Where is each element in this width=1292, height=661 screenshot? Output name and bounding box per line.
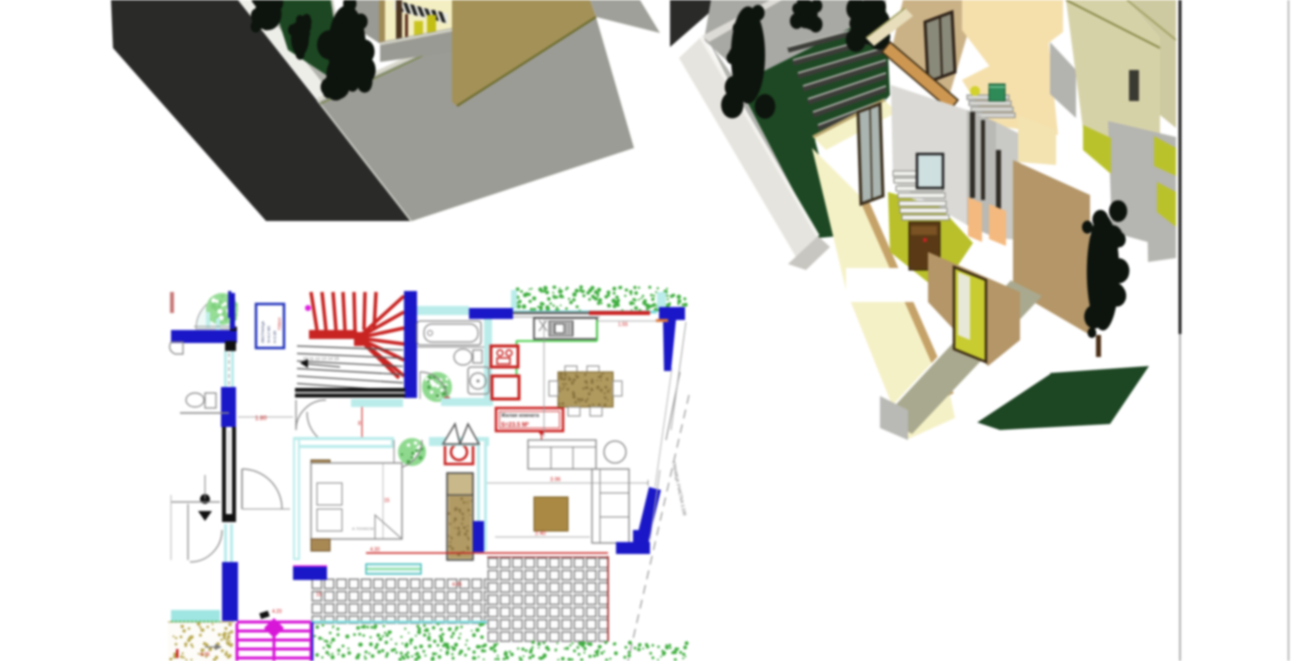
svg-text:15: 15 [316, 592, 322, 598]
svg-text:1.80: 1.80 [255, 416, 267, 422]
svg-text:1.55: 1.55 [618, 322, 628, 328]
svg-text:4.30: 4.30 [370, 547, 380, 553]
svg-text:15: 15 [384, 498, 390, 504]
svg-text:4.20: 4.20 [272, 609, 282, 615]
svg-text:2.40: 2.40 [535, 531, 546, 537]
svg-text:3.96: 3.96 [550, 477, 561, 483]
svg-text:S=23.5 М²: S=23.5 М² [501, 422, 529, 429]
svg-text:ПЛАН: ПЛАН [277, 318, 282, 330]
svg-text:ЛЕСТНИЦА: ЛЕСТНИЦА [260, 321, 265, 343]
svg-text:4.05: 4.05 [452, 582, 462, 588]
svg-text:4.05: 4.05 [200, 652, 210, 658]
svg-text:А 70Х90СМ: А 70Х90СМ [352, 526, 374, 531]
svg-text:S=4.2 М2: S=4.2 М2 [266, 325, 271, 343]
svg-text:Жилая комната: Жилая комната [500, 413, 539, 419]
svg-text:10 11 12 13 14 15: 10 11 12 13 14 15 [303, 356, 339, 361]
svg-text:h=2.85: h=2.85 [272, 330, 277, 343]
svg-text:8: 8 [358, 421, 361, 427]
